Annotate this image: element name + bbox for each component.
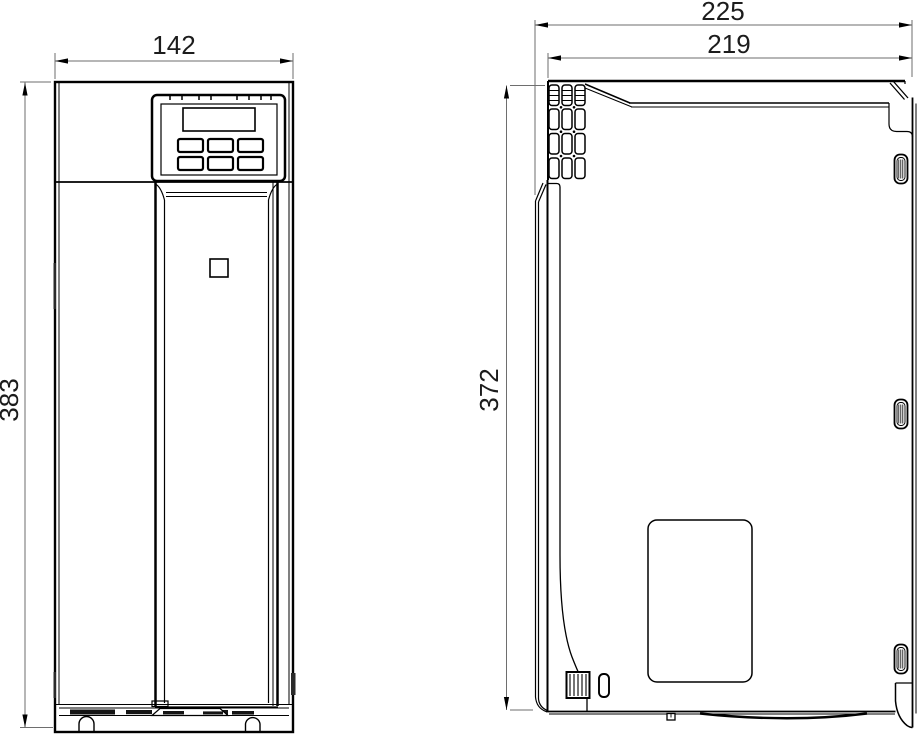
grille-slats xyxy=(550,91,585,101)
right-edge-tab xyxy=(291,673,296,695)
arrowhead xyxy=(504,86,509,99)
front-height-dimension-label: 383 xyxy=(0,378,24,421)
mounting-slot-left xyxy=(79,717,94,732)
left-hinge-mark-upper xyxy=(54,263,57,309)
technical-drawing: 142 383 xyxy=(0,0,919,738)
side-depth-body-dimension-label: 219 xyxy=(707,29,750,59)
left-hinge-mark-lower xyxy=(54,672,57,698)
bottom-slot xyxy=(599,674,609,697)
keypad-button xyxy=(208,157,233,170)
side-height-dimension-label: 372 xyxy=(474,368,504,411)
arrowhead xyxy=(899,22,912,27)
keypad-button xyxy=(208,139,233,152)
bottom-right-foot xyxy=(896,683,913,728)
arrowhead xyxy=(55,58,68,63)
front-cover-panel xyxy=(548,184,587,712)
arrowhead xyxy=(22,83,27,96)
side-latch-top xyxy=(895,155,908,184)
side-latch-middle xyxy=(895,400,908,429)
side-latch-bottom xyxy=(895,645,908,674)
side-front-cover xyxy=(536,180,588,712)
keypad-button xyxy=(178,139,203,152)
grille-cover-diagonal xyxy=(585,84,630,103)
arrowhead xyxy=(280,58,293,63)
arrowhead xyxy=(899,55,912,60)
arrowhead xyxy=(535,22,548,27)
keypad-button xyxy=(238,157,263,170)
arrowhead xyxy=(548,55,561,60)
keypad-display xyxy=(183,108,255,131)
arrowhead xyxy=(504,697,509,710)
keypad-button xyxy=(238,139,263,152)
keypad-button xyxy=(178,157,203,170)
vent-grille xyxy=(548,81,632,180)
front-door xyxy=(152,182,278,707)
mounting-slot-right xyxy=(246,718,261,732)
side-view xyxy=(536,81,917,728)
arrowhead xyxy=(22,715,27,728)
base-center-slot xyxy=(203,711,223,714)
front-width-dimension-label: 142 xyxy=(152,30,195,60)
side-depth-overall-dimension-label: 225 xyxy=(701,0,744,26)
nameplate-label xyxy=(648,520,752,682)
keypad-panel xyxy=(152,95,285,181)
base-center-slot xyxy=(163,711,184,714)
cover-screw xyxy=(210,259,228,277)
front-base xyxy=(55,705,293,733)
dim-front-height xyxy=(20,82,53,728)
side-bottom xyxy=(546,672,913,728)
front-body-outline xyxy=(55,82,293,732)
drawing-canvas: 142 383 xyxy=(0,0,919,738)
keypad-top-ticks xyxy=(170,96,271,100)
top-right-bracket xyxy=(889,103,913,137)
keypad-buttons xyxy=(178,139,263,170)
front-view xyxy=(54,82,296,732)
